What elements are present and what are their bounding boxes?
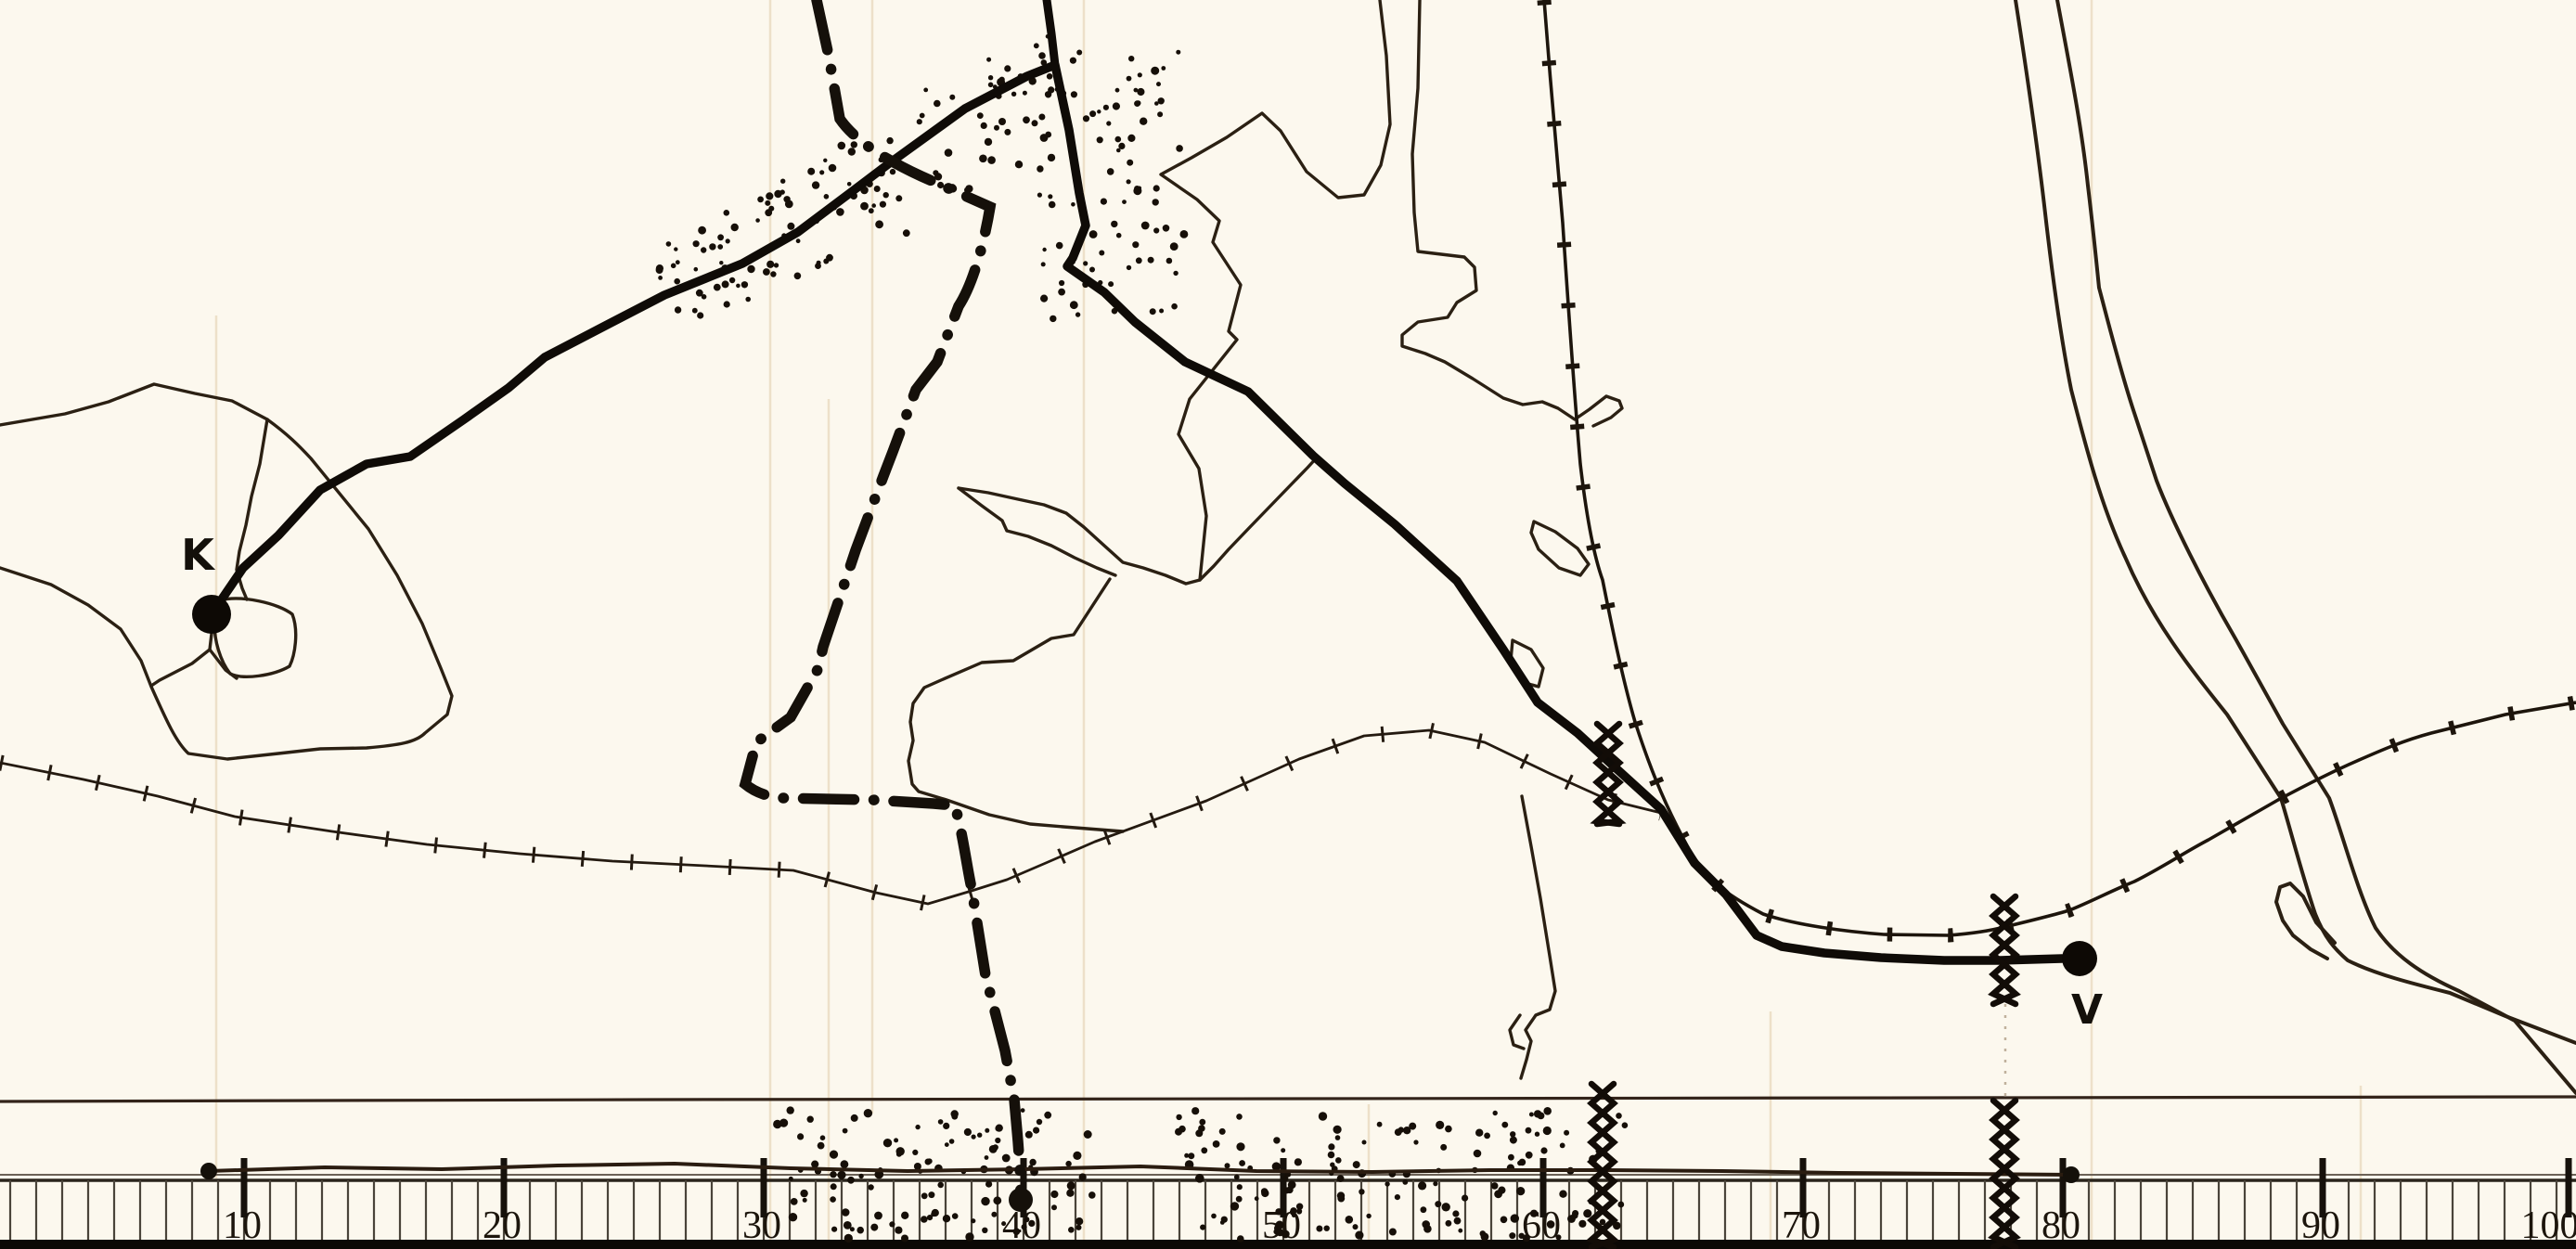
stipple-dot [1107, 168, 1114, 175]
stipple-dot [841, 1160, 849, 1168]
stipple-dot [1359, 1189, 1364, 1194]
stipple-dot [1337, 1175, 1345, 1182]
stipple-dot [1200, 1225, 1205, 1230]
stipple-dot [674, 247, 677, 251]
stipple-dot [1273, 1137, 1280, 1143]
stipple-dot [875, 220, 883, 228]
stipple-dot [1355, 1231, 1363, 1240]
stipple-dot [812, 181, 819, 188]
stipple-dot [675, 306, 681, 313]
stipple-dot [766, 261, 774, 268]
stipple-dot [1543, 1107, 1552, 1115]
stipple-dot [807, 1116, 814, 1123]
stipple-dot [943, 1215, 950, 1222]
stipple-dot [965, 1232, 973, 1241]
stipple-dot [1048, 194, 1052, 199]
railway-base-line [1544, 0, 2576, 935]
stipple-dot [1075, 1225, 1081, 1230]
stipple-dot [1316, 1226, 1322, 1232]
stipple-dot [1089, 230, 1098, 238]
stipple-dot [1038, 52, 1046, 59]
stipple-dot [1435, 1201, 1441, 1207]
dashdot-terminal-blob [1009, 1188, 1033, 1212]
stipple-dot [1153, 227, 1159, 233]
stipple-dot [1543, 1127, 1552, 1135]
stipple-dot [1493, 1111, 1498, 1115]
stipple-dot [1219, 1128, 1226, 1135]
stipple-dot [709, 243, 715, 250]
scan-artifact-lines [216, 0, 2361, 1249]
stipple-dot [836, 208, 844, 216]
stipple-dot [1002, 1154, 1011, 1163]
stipple-dot [1526, 1127, 1532, 1134]
stipple-dot [1275, 1208, 1282, 1215]
stipple-dot [1041, 262, 1046, 266]
route [215, 0, 2062, 960]
stipple-dot [838, 142, 846, 150]
stipple-dot [971, 1218, 975, 1223]
stipple-dot [843, 1128, 848, 1134]
stipple-dot [994, 125, 999, 131]
stipple-dot [847, 182, 852, 187]
stipple-dot [1236, 1114, 1243, 1120]
stipple-dot [977, 1133, 982, 1138]
stipple-dot [1491, 1182, 1499, 1190]
stipple-dot [1056, 242, 1063, 250]
bottom-band-line [0, 1097, 2576, 1101]
stipple-dot [1475, 1129, 1483, 1137]
stipple-dot [1195, 1174, 1204, 1183]
bog-pocket-1 [1531, 521, 1589, 575]
stipple-dot [1176, 50, 1180, 55]
stipple-dot [1004, 65, 1011, 71]
stipple-dot [1535, 1132, 1539, 1137]
stipple-dot [800, 1190, 807, 1197]
stipple-dot [949, 1139, 955, 1144]
stipple-dot [1346, 1216, 1354, 1224]
stipple-dot [1170, 242, 1179, 251]
stipple-dot [986, 58, 991, 62]
bog-edge-hook [1510, 1015, 1524, 1049]
stipple-dot [830, 1196, 836, 1203]
stipple-dot [1050, 1191, 1058, 1198]
stipple-dot [741, 281, 748, 288]
stipple-dot [1418, 1181, 1426, 1190]
stipple-dot [789, 1213, 797, 1221]
stipple-dot [1037, 165, 1043, 172]
stipple-dot [1136, 257, 1142, 264]
stipple-dot [745, 297, 751, 303]
stipple-dot [1127, 135, 1135, 142]
marsh-lens-upper [959, 457, 1318, 584]
stipple-dot [1067, 1181, 1075, 1190]
stipple-dot [952, 1213, 959, 1219]
stipple-dot [820, 1135, 826, 1140]
stipple-dot [1353, 1161, 1360, 1168]
stipple-dot [1033, 1127, 1039, 1134]
stipple-dot [1294, 1158, 1302, 1165]
stipple-dot [1153, 185, 1160, 191]
stipple-dot [1423, 1225, 1432, 1233]
stipple-dot [1530, 1210, 1538, 1217]
stipple-dot [874, 1212, 882, 1220]
stipple-dot [886, 137, 893, 144]
stipple-dot [1037, 193, 1042, 198]
stipple-dot [945, 148, 953, 157]
stipple-dot [1075, 312, 1080, 316]
stipple-dot [1275, 1221, 1283, 1230]
stipple-dot [1454, 1217, 1462, 1225]
stipple-dot [851, 1114, 858, 1122]
stipple-dot [1559, 1191, 1566, 1198]
stipple-dot [1138, 72, 1142, 77]
stipple-dot [991, 1212, 997, 1217]
stipple-dot [889, 1221, 895, 1227]
stipple-dot [1132, 241, 1139, 248]
stipple-dot [794, 273, 802, 280]
stipple-dot [1516, 1187, 1525, 1195]
stipple-dot [1474, 1150, 1482, 1158]
stipple-dot [1134, 88, 1139, 93]
river-east-bank [2057, 0, 2576, 1093]
stipple-dot [692, 308, 698, 314]
stipple-dot [858, 1174, 863, 1178]
stipple-dot [921, 1216, 928, 1223]
stipple-dot [1058, 289, 1065, 296]
stipple-dot [831, 1183, 837, 1190]
stipple-dot [694, 267, 699, 272]
stipple-dot [985, 1181, 992, 1188]
stipple-dot [1523, 1234, 1530, 1242]
stipple-dot [993, 1196, 1001, 1204]
stipple-dot [763, 268, 770, 276]
stipple-dot [1116, 233, 1122, 238]
orienteering-map: 102030405060708090100 K V [0, 0, 2576, 1249]
stipple-dot [844, 1221, 852, 1230]
stipple-dot [988, 75, 993, 80]
river [2016, 0, 2576, 1093]
stipple-dot [791, 1198, 798, 1205]
stipple-dot [1128, 56, 1134, 61]
stipple-dot [830, 1151, 838, 1159]
stipple-dot [1337, 1195, 1345, 1203]
stipple-dot [1163, 225, 1170, 232]
stipple-dot [1195, 1129, 1203, 1137]
bog-edge-lower [1521, 796, 1555, 1078]
stipple-dot [1452, 1210, 1459, 1217]
stipple-dot [1004, 129, 1011, 135]
stipple-dot [1088, 1191, 1096, 1199]
stipple-dot [883, 1139, 892, 1147]
railway-bead-ticks [1544, 0, 2576, 935]
stipple-dot [1157, 111, 1163, 117]
stipple-dot [770, 271, 776, 277]
route-stub-to-top-edge [1047, 0, 1055, 65]
stipple-dot [774, 263, 779, 267]
stipple-dot [1564, 1130, 1569, 1136]
stipple-dot [1070, 301, 1078, 309]
stipple-dot [868, 1184, 873, 1190]
stipple-dot [1148, 257, 1154, 264]
stipple-dot [731, 224, 739, 231]
stipple-dot [1097, 109, 1101, 113]
stipple-dot [1517, 1161, 1523, 1166]
stipple-dot [823, 159, 827, 162]
stipple-dot [988, 83, 994, 88]
stipple-dot [1547, 1220, 1555, 1229]
stipple-dot [1221, 1217, 1228, 1223]
stipple-dot [1236, 1196, 1243, 1203]
stipple-dot [1395, 1128, 1402, 1136]
stipple-dot [937, 182, 944, 188]
stipple-dot [1511, 1214, 1519, 1222]
stipple-dot [998, 118, 1006, 125]
stipple-dot [1097, 136, 1103, 143]
stipple-dot [1237, 1184, 1243, 1190]
stipple-dot [851, 141, 857, 148]
stipple-dot [1494, 1190, 1502, 1198]
stipple-dot [1213, 1140, 1220, 1148]
tally-line [209, 1164, 2071, 1175]
stipple-dot [736, 284, 741, 289]
stipple-dot [1113, 102, 1120, 109]
stipple-dot [1436, 1121, 1444, 1129]
river-oxbow-arm [2276, 883, 2335, 959]
stipple-dot [1237, 1235, 1244, 1243]
stipple-dot [1236, 1142, 1244, 1151]
stipple-dot [1409, 1123, 1416, 1130]
stipple-dot [1115, 88, 1120, 93]
stipple-dot [934, 100, 941, 108]
stipple-dot [1433, 1181, 1437, 1186]
stipple-dot [1617, 1202, 1624, 1208]
stipple-dot [920, 113, 925, 119]
stipple-dot [831, 1227, 837, 1232]
stipple-dot [1076, 50, 1082, 56]
stipple-dot [993, 1144, 998, 1150]
stipple-dot [726, 238, 730, 243]
railway-line [1544, 0, 2576, 935]
marsh-boundary-east [1402, 0, 1622, 426]
stipple-dot [729, 277, 735, 283]
stipple-dot [1040, 295, 1048, 303]
stipple-dot [1136, 100, 1141, 106]
stipple-dot [1616, 1113, 1622, 1119]
stipple-dot [803, 1198, 807, 1203]
stipple-dot [1038, 114, 1045, 121]
dashdot-boundary-line [745, 0, 1021, 1202]
stipple-dot [1501, 1122, 1508, 1128]
stipple-dot [1044, 1112, 1051, 1119]
stipple-dot [671, 264, 676, 269]
stipple-dot [1353, 1224, 1359, 1230]
stipple-dot [807, 168, 815, 175]
stipple-dot [985, 1155, 989, 1160]
stipple-dot [785, 200, 793, 209]
stipple-dot [747, 265, 754, 273]
stipple-dot [842, 1208, 850, 1217]
stipple-dot [1330, 1163, 1334, 1167]
stipple-dot [921, 1192, 928, 1199]
stipple-dot [860, 202, 869, 211]
stipple-dot [949, 95, 955, 100]
stipple-dot [724, 210, 730, 216]
stipple-dot [1023, 91, 1027, 96]
stipple-dot [1225, 1163, 1230, 1168]
stipple-dot [702, 294, 707, 300]
stipple-dot [1045, 132, 1051, 138]
stipple-dot [1049, 201, 1056, 209]
stipple-dot [972, 1135, 976, 1140]
stipple-dot [1089, 267, 1095, 273]
stipple-dot [890, 169, 895, 174]
stipple-dot [811, 1161, 818, 1168]
hill-outline [0, 384, 452, 759]
stipple-dot [903, 229, 910, 237]
stipple-dot [895, 1227, 902, 1234]
stipple-dot [951, 1110, 959, 1117]
k-dot-spur [151, 634, 212, 686]
stipple-dot [1071, 202, 1075, 207]
stipple-dot [985, 1128, 989, 1133]
stipple-dot [871, 203, 876, 208]
stipple-dot [1127, 160, 1133, 166]
stipple-dot [1015, 161, 1023, 168]
stipple-dot [1281, 1148, 1285, 1152]
stipple-dot [789, 1177, 793, 1181]
stipple-dot [1510, 1131, 1515, 1137]
stipple-dot [1141, 222, 1150, 230]
stipple-dot [1540, 1147, 1547, 1153]
stipple-dot [1127, 179, 1131, 184]
stipple-dot [1101, 199, 1107, 205]
stipple-dot [915, 1125, 920, 1129]
tally-end-dot [2063, 1166, 2080, 1183]
stipple-dot [977, 112, 984, 119]
stipple-dot [1480, 1230, 1487, 1237]
stipple-dot [1071, 91, 1077, 97]
stipple-dot [1066, 1190, 1074, 1197]
stipple-dot [1389, 1229, 1397, 1236]
stipple-dot [1021, 1108, 1025, 1113]
stipple-dot [864, 1109, 872, 1117]
contour-lines [0, 0, 2576, 1093]
stipple-dot [1134, 186, 1140, 191]
stipple-dot [1290, 1209, 1296, 1216]
stipple-dot [928, 1191, 934, 1198]
stipple-dot [830, 1171, 836, 1178]
stipple-dot [719, 261, 723, 264]
stipple-dot [848, 148, 856, 155]
stipple-dot [1099, 251, 1104, 256]
stipple-dot [1180, 230, 1189, 238]
stipple-dot [1538, 1113, 1545, 1120]
stipple-dot [1127, 265, 1131, 270]
stipple-dot [1084, 1130, 1092, 1139]
stipple-dot [1070, 58, 1076, 64]
stipple-dot [1089, 110, 1096, 117]
stipple-dot [847, 1177, 855, 1184]
ruler-bottom-bar [0, 1240, 2576, 1249]
stipple-dot [917, 119, 922, 124]
stipple-dot [1622, 1122, 1629, 1128]
stipple-dot [927, 1215, 933, 1220]
stipple-dot [697, 312, 703, 318]
stipple-dot [1191, 1107, 1199, 1114]
stipple-dot [819, 170, 824, 174]
marsh-boundary-south [908, 579, 1123, 831]
stipple-dot [943, 1123, 949, 1129]
stipple-dot [1151, 67, 1159, 75]
stipple-dot [1176, 145, 1183, 152]
stipple-dot [1335, 1157, 1342, 1164]
stipple-dot [1442, 1203, 1450, 1211]
stipple-dot [1578, 1220, 1586, 1228]
stipple-dot [757, 197, 764, 203]
stipple-dot [768, 206, 774, 212]
stipple-dot [1050, 315, 1056, 322]
stipple-dot [1234, 1175, 1240, 1180]
stipple-dot [1230, 1202, 1239, 1210]
stipple-dot [1013, 1228, 1021, 1235]
stipple-dot [995, 1126, 1001, 1132]
stipple-dot [927, 1158, 933, 1164]
stipple-dot [981, 122, 987, 129]
start-label: K [181, 530, 216, 580]
stipple-dot [1028, 1220, 1035, 1227]
stipple-dot [755, 218, 760, 223]
stipple-dot [1137, 88, 1144, 96]
stipple-dot [787, 1106, 794, 1114]
stipple-dot [901, 1235, 908, 1243]
stipple-dot [937, 1182, 944, 1189]
stipple-dot [722, 280, 729, 288]
stipple-dot [870, 1224, 878, 1231]
stipple-dot [1421, 1206, 1427, 1213]
stipple-dot [1176, 1114, 1181, 1120]
stipple-dot [1261, 1188, 1268, 1194]
stipple-dot [987, 156, 996, 164]
stipple-dot [1140, 118, 1147, 125]
stipple-dot [1385, 1181, 1389, 1186]
stipple-dot [982, 1228, 987, 1233]
stipple-dot [1413, 1140, 1418, 1144]
stipple-dot [1022, 1224, 1027, 1230]
stipple-dot [995, 1138, 1000, 1143]
stipple-dot [1083, 261, 1088, 265]
stipple-dot [880, 201, 886, 208]
stipple-dot [1239, 1160, 1245, 1166]
marsh-lens-lower [959, 488, 1115, 575]
stipple-dot [869, 208, 874, 213]
stipple-dot [1161, 66, 1166, 71]
stipple-dot [1583, 1209, 1591, 1217]
stipple-dot [874, 186, 881, 192]
stipple-dot [1296, 1208, 1302, 1214]
stipple-dot [1065, 1161, 1071, 1166]
stipple-dot [780, 179, 785, 184]
stipple-dot [1032, 120, 1038, 126]
stipple-dot [1567, 1215, 1576, 1223]
stipple-dot [1034, 43, 1039, 48]
stipple-dot [857, 1227, 864, 1234]
stipple-dot [1075, 1217, 1083, 1225]
stipple-dot [701, 247, 706, 252]
stipple-dot [1118, 143, 1125, 149]
stipple-dot [1024, 1217, 1029, 1222]
stipple-dot [945, 1142, 949, 1147]
stipple-dot [676, 260, 680, 264]
